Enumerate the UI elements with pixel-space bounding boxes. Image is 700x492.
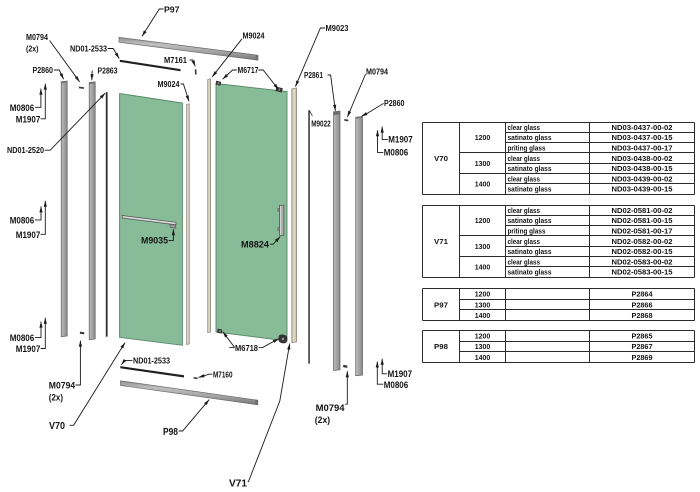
svg-text:P97: P97 bbox=[164, 4, 180, 14]
svg-text:M8824: M8824 bbox=[241, 239, 270, 250]
svg-text:priting glass: priting glass bbox=[508, 143, 546, 152]
svg-text:P2860: P2860 bbox=[33, 66, 54, 75]
svg-text:P2864: P2864 bbox=[632, 290, 654, 299]
svg-text:P2861: P2861 bbox=[304, 71, 323, 80]
svg-text:M1907: M1907 bbox=[16, 114, 41, 124]
svg-text:satinato glass: satinato glass bbox=[508, 247, 552, 256]
svg-text:M0806: M0806 bbox=[384, 380, 409, 390]
svg-text:clear glass: clear glass bbox=[508, 174, 541, 183]
svg-text:ND02-0583-00-15: ND02-0583-00-15 bbox=[612, 268, 673, 277]
svg-text:1200: 1200 bbox=[475, 133, 491, 142]
svg-text:M9022: M9022 bbox=[311, 119, 331, 128]
svg-text:P2867: P2867 bbox=[632, 342, 653, 351]
svg-text:P98: P98 bbox=[434, 342, 448, 351]
svg-text:clear glass: clear glass bbox=[508, 237, 541, 246]
svg-text:ND03-0438-00-15: ND03-0438-00-15 bbox=[612, 164, 673, 173]
svg-text:1200: 1200 bbox=[475, 216, 491, 225]
svg-text:M1907: M1907 bbox=[388, 369, 413, 379]
svg-text:ND02-0581-00-15: ND02-0581-00-15 bbox=[612, 216, 673, 225]
svg-text:clear glass: clear glass bbox=[508, 123, 541, 132]
svg-text:1300: 1300 bbox=[475, 300, 491, 309]
svg-text:ND01-2533: ND01-2533 bbox=[70, 45, 107, 54]
svg-text:P2869: P2869 bbox=[632, 353, 653, 362]
svg-text:clear glass: clear glass bbox=[508, 257, 541, 266]
svg-text:clear glass: clear glass bbox=[508, 154, 541, 163]
svg-text:1300: 1300 bbox=[475, 159, 491, 168]
svg-text:M0794: M0794 bbox=[26, 33, 48, 42]
svg-text:1300: 1300 bbox=[475, 242, 491, 251]
svg-text:1200: 1200 bbox=[475, 290, 491, 299]
svg-text:ND03-0438-00-02: ND03-0438-00-02 bbox=[612, 154, 673, 163]
svg-text:ND03-0437-00-02: ND03-0437-00-02 bbox=[612, 123, 673, 132]
svg-text:P2860: P2860 bbox=[384, 99, 405, 108]
svg-text:M1907: M1907 bbox=[16, 230, 41, 240]
svg-text:ND02-0583-00-02: ND02-0583-00-02 bbox=[612, 257, 673, 266]
svg-text:M0806: M0806 bbox=[384, 148, 409, 158]
svg-text:ND02-0581-00-02: ND02-0581-00-02 bbox=[612, 206, 673, 215]
svg-text:P2865: P2865 bbox=[632, 331, 653, 340]
svg-text:(2x): (2x) bbox=[49, 392, 63, 402]
svg-text:satinato glass: satinato glass bbox=[508, 133, 552, 142]
svg-text:1300: 1300 bbox=[475, 342, 491, 351]
svg-text:M0806: M0806 bbox=[10, 103, 35, 113]
svg-text:ND02-0582-00-15: ND02-0582-00-15 bbox=[612, 247, 673, 256]
svg-text:(2x): (2x) bbox=[315, 415, 330, 425]
svg-text:1400: 1400 bbox=[475, 180, 491, 189]
svg-text:ND01-2533: ND01-2533 bbox=[133, 357, 170, 366]
svg-text:P2868: P2868 bbox=[632, 311, 653, 320]
svg-text:P98: P98 bbox=[163, 426, 178, 438]
svg-text:ND03-0439-00-15: ND03-0439-00-15 bbox=[612, 185, 673, 194]
svg-text:1400: 1400 bbox=[475, 311, 491, 320]
svg-text:ND03-0437-00-15: ND03-0437-00-15 bbox=[612, 133, 673, 142]
svg-text:ND02-0582-00-02: ND02-0582-00-02 bbox=[612, 237, 673, 246]
svg-text:clear glass: clear glass bbox=[508, 206, 541, 215]
svg-text:M0794: M0794 bbox=[366, 68, 388, 77]
svg-text:ND03-0437-00-17: ND03-0437-00-17 bbox=[612, 143, 673, 152]
svg-text:P2866: P2866 bbox=[632, 300, 653, 309]
svg-text:satinato glass: satinato glass bbox=[508, 268, 552, 277]
svg-text:ND02-0581-00-17: ND02-0581-00-17 bbox=[612, 226, 673, 235]
svg-text:M0806: M0806 bbox=[10, 333, 35, 343]
svg-text:M9035: M9035 bbox=[141, 236, 169, 247]
svg-text:1400: 1400 bbox=[475, 353, 491, 362]
svg-text:V70: V70 bbox=[49, 420, 65, 432]
svg-text:1400: 1400 bbox=[475, 263, 491, 272]
svg-text:satinato glass: satinato glass bbox=[508, 164, 552, 173]
svg-text:P97: P97 bbox=[434, 300, 448, 309]
svg-text:M1907: M1907 bbox=[16, 344, 41, 354]
svg-text:M6718: M6718 bbox=[235, 344, 259, 353]
svg-text:M6717: M6717 bbox=[238, 66, 259, 75]
svg-text:1200: 1200 bbox=[475, 331, 491, 340]
svg-text:V71: V71 bbox=[434, 237, 448, 246]
svg-text:ND03-0439-00-02: ND03-0439-00-02 bbox=[612, 174, 673, 183]
svg-text:M0794: M0794 bbox=[316, 403, 346, 413]
svg-text:satinato glass: satinato glass bbox=[508, 185, 552, 194]
svg-text:M9024: M9024 bbox=[158, 80, 180, 89]
svg-text:M0794: M0794 bbox=[49, 381, 75, 391]
svg-text:M9024: M9024 bbox=[243, 32, 265, 41]
svg-text:priting glass: priting glass bbox=[508, 226, 546, 235]
svg-text:M7160: M7160 bbox=[213, 371, 233, 380]
svg-text:V71: V71 bbox=[229, 478, 247, 490]
svg-text:(2x): (2x) bbox=[26, 44, 39, 53]
svg-text:satinato glass: satinato glass bbox=[508, 216, 552, 225]
svg-text:M0806: M0806 bbox=[10, 215, 35, 225]
svg-text:P2863: P2863 bbox=[98, 67, 118, 76]
svg-text:M9023: M9023 bbox=[326, 24, 350, 33]
svg-text:ND01-2520: ND01-2520 bbox=[7, 146, 44, 155]
svg-text:V70: V70 bbox=[434, 154, 448, 163]
svg-text:M1907: M1907 bbox=[388, 135, 413, 145]
svg-text:M7161: M7161 bbox=[164, 56, 188, 65]
